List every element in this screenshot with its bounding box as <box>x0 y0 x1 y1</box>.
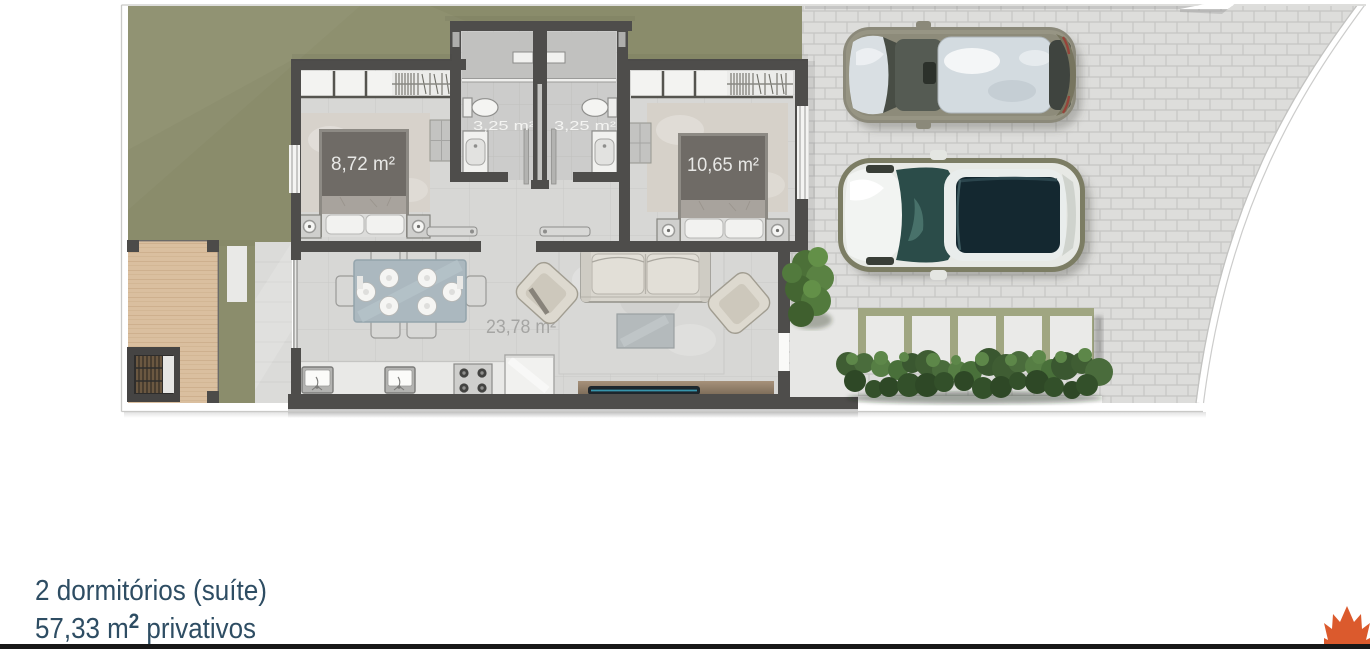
svg-text:3,25 m²: 3,25 m² <box>473 118 536 133</box>
svg-text:57,33 m2 privativos: 57,33 m2 privativos <box>35 610 256 645</box>
svg-text:8,72 m²: 8,72 m² <box>331 154 395 175</box>
svg-text:10,65 m²: 10,65 m² <box>687 155 759 176</box>
svg-text:2 dormitórios (suíte): 2 dormitórios (suíte) <box>35 575 267 607</box>
svg-text:3,25 m²: 3,25 m² <box>554 118 617 133</box>
